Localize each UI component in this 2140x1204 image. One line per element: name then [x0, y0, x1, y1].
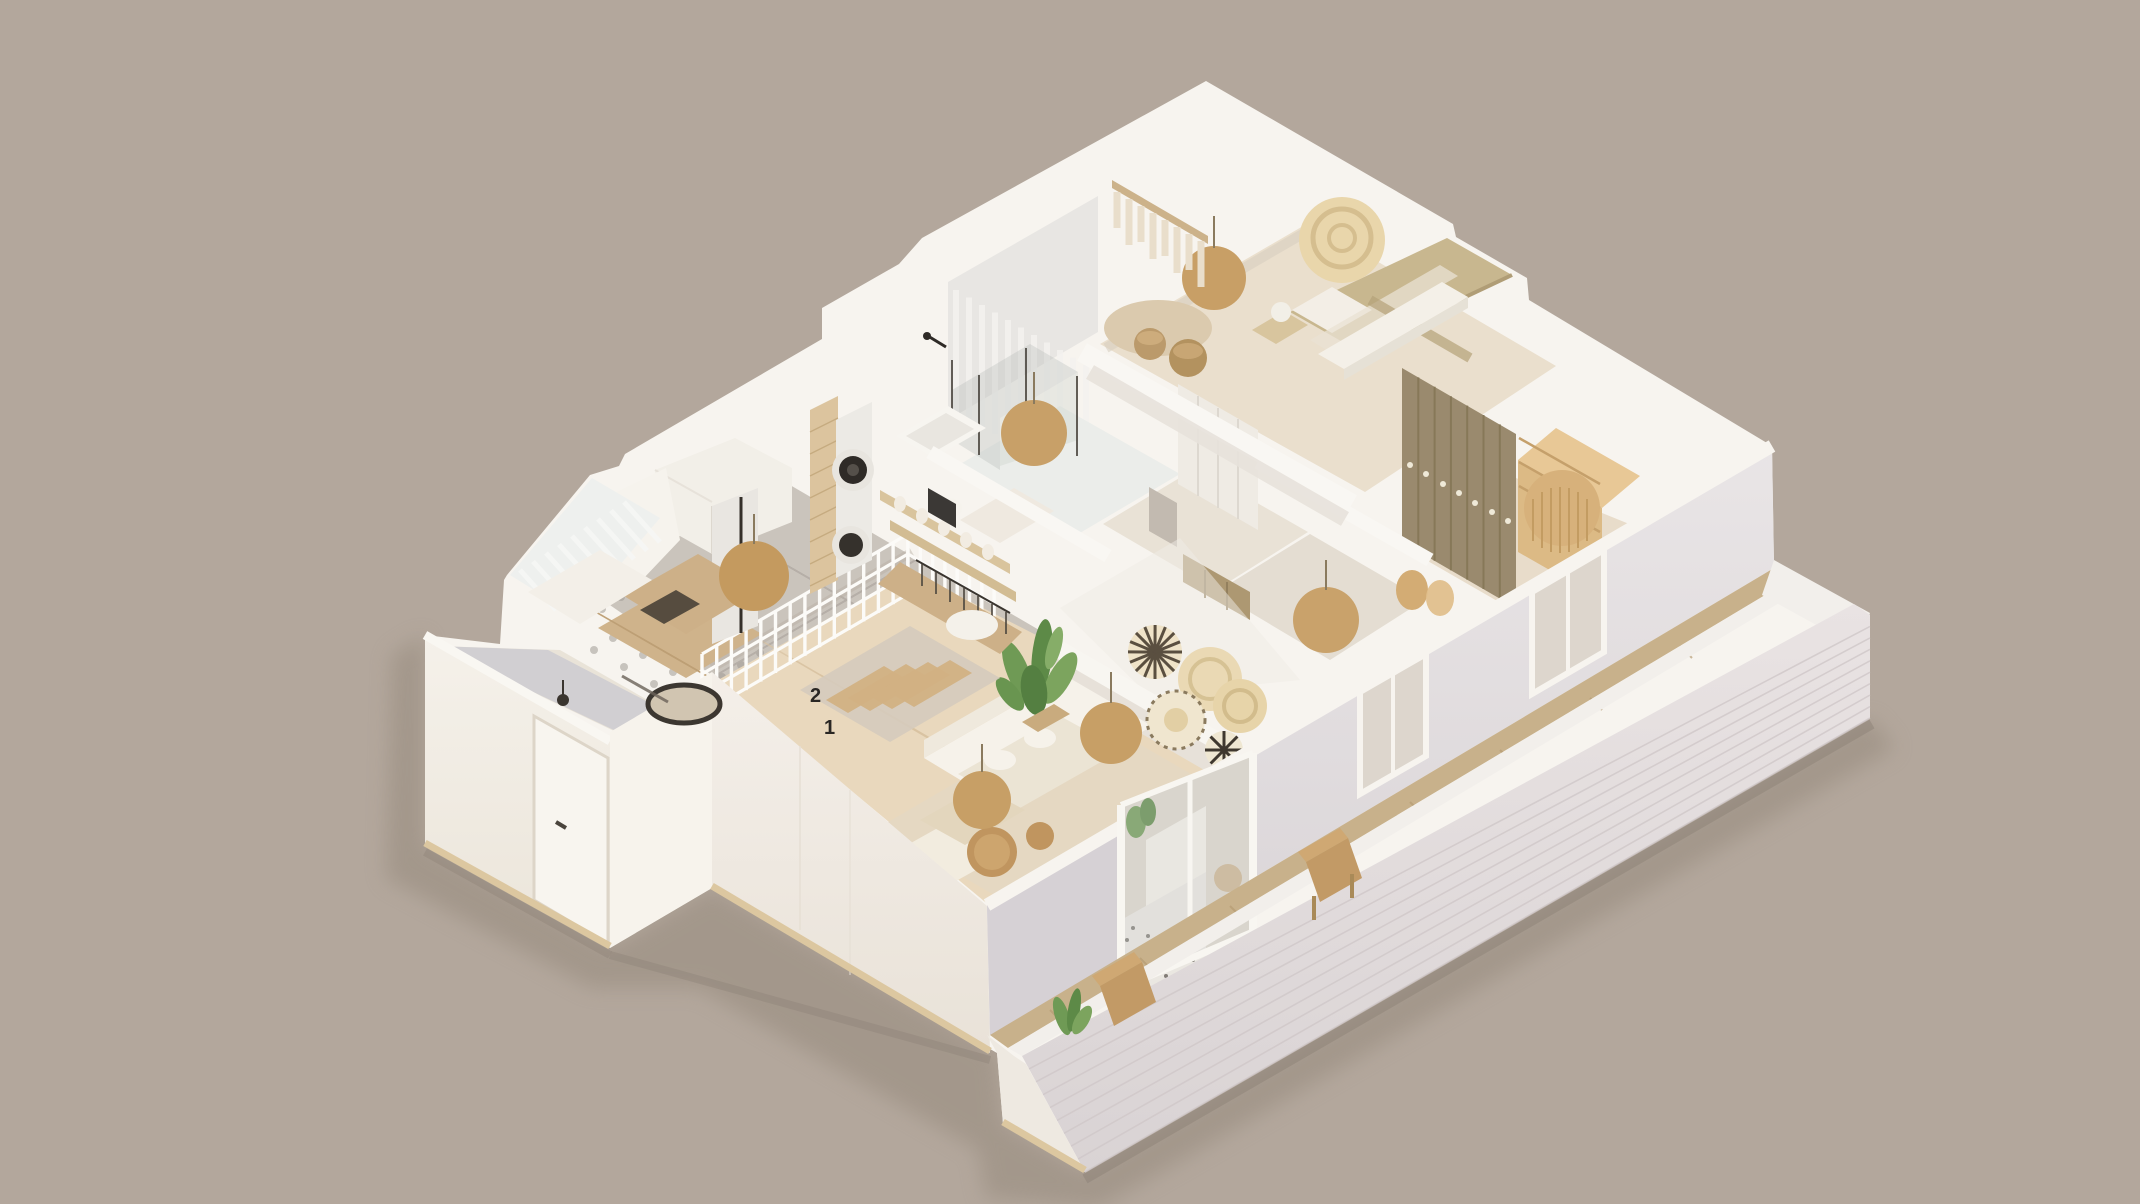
- svg-text:1: 1: [824, 717, 835, 739]
- svg-text:2: 2: [810, 685, 821, 707]
